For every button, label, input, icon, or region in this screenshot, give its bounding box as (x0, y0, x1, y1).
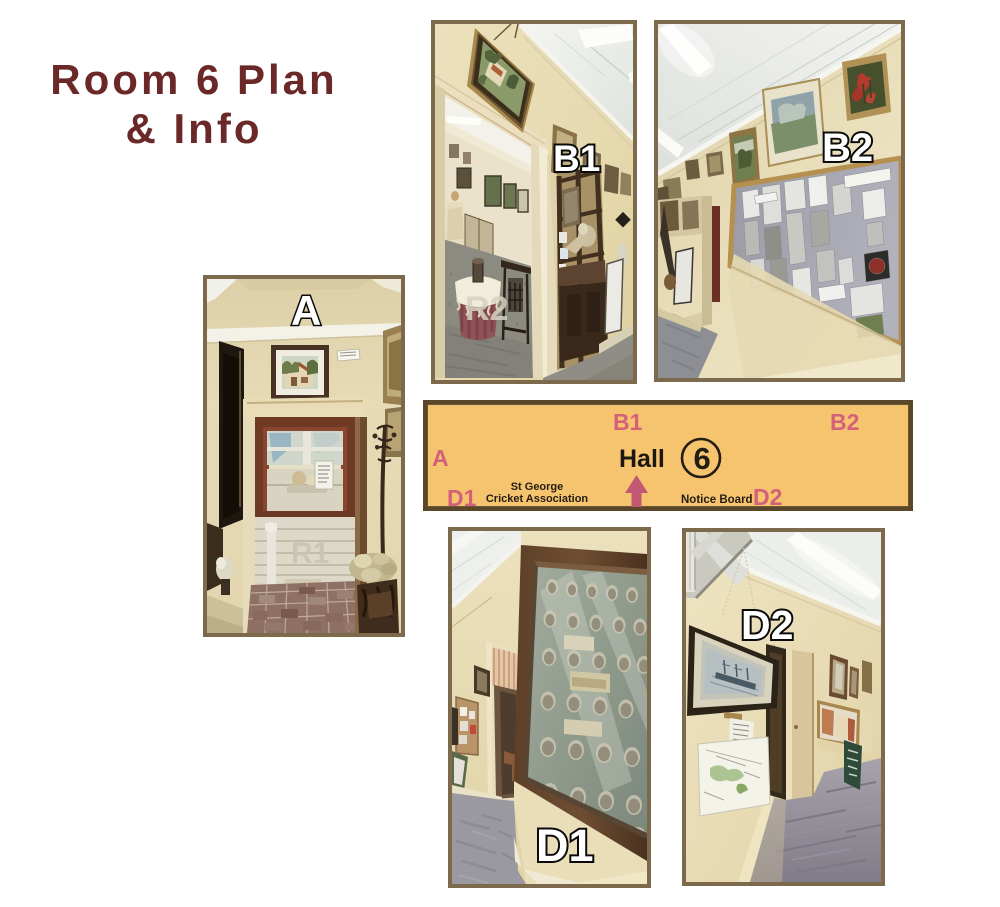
svg-text:Cricket Association: Cricket Association (486, 493, 589, 505)
svg-text:R1: R1 (291, 537, 329, 570)
svg-text:B1: B1 (553, 138, 600, 179)
svg-text:B2: B2 (822, 126, 873, 170)
svg-text:D1: D1 (447, 485, 477, 507)
svg-text:A: A (291, 287, 321, 334)
svg-text:B2: B2 (830, 409, 859, 435)
svg-text:A: A (432, 445, 449, 471)
svg-text:Hall: Hall (619, 445, 665, 473)
svg-text:D1: D1 (536, 820, 594, 871)
svg-text:6: 6 (694, 441, 711, 476)
svg-text:R2: R2 (465, 290, 508, 328)
svg-text:D2: D2 (741, 602, 793, 648)
svg-text:Notice Board: Notice Board (681, 494, 753, 506)
svg-text:St George: St George (511, 481, 564, 493)
svg-text:B1: B1 (613, 409, 643, 435)
svg-text:D2: D2 (753, 484, 782, 507)
